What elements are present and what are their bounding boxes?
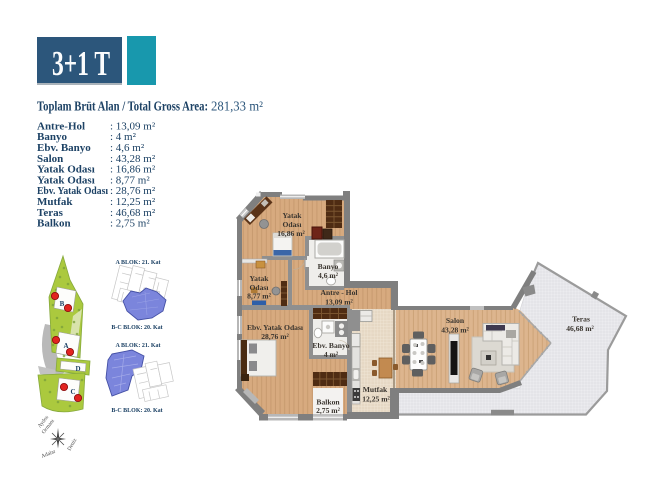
svg-text:Ebv. Banyo: Ebv. Banyo: [312, 341, 349, 350]
svg-text:16,86 m²: 16,86 m²: [277, 229, 305, 238]
svg-text:46,68 m²: 46,68 m²: [566, 324, 594, 333]
svg-text:B-C BLOK: 20. Kat: B-C BLOK: 20. Kat: [111, 408, 162, 414]
svg-text:Balkon: Balkon: [37, 218, 71, 230]
svg-text:4,6 m²: 4,6 m²: [318, 271, 339, 280]
svg-text:Yatak: Yatak: [283, 211, 303, 220]
svg-text:Antre - Hol: Antre - Hol: [321, 288, 358, 297]
svg-text:: 2,75 m²: : 2,75 m²: [110, 218, 150, 230]
svg-text:28,76 m²: 28,76 m²: [261, 332, 289, 341]
svg-text:Salon: Salon: [446, 316, 465, 325]
svg-text:B: B: [60, 300, 65, 308]
svg-text:Mutfak: Mutfak: [363, 385, 388, 394]
svg-text:281,33 m²: 281,33 m²: [211, 99, 263, 114]
svg-text:Teras: Teras: [572, 315, 590, 324]
svg-text:8,77 m²: 8,77 m²: [247, 292, 272, 301]
svg-text:43,28 m²: 43,28 m²: [441, 326, 469, 335]
svg-text:2,75 m²: 2,75 m²: [316, 406, 341, 415]
svg-text:A BLOK: 21. Kat: A BLOK: 21. Kat: [115, 343, 160, 349]
svg-text:Banyo: Banyo: [318, 262, 339, 271]
svg-text:Odası: Odası: [283, 220, 302, 229]
svg-text:A: A: [63, 342, 68, 350]
svg-text:B-C BLOK: 20. Kat: B-C BLOK: 20. Kat: [111, 325, 162, 331]
svg-text:Adalar: Adalar: [41, 449, 57, 460]
svg-text:Deniz: Deniz: [67, 437, 79, 452]
svg-text:C: C: [70, 388, 75, 396]
svg-text:Yatak: Yatak: [250, 274, 270, 283]
svg-text:12,25 m²: 12,25 m²: [362, 395, 390, 404]
svg-text:3+1 T: 3+1 T: [52, 44, 110, 83]
svg-text:D: D: [75, 365, 80, 373]
svg-text:Ebv. Yatak Odası: Ebv. Yatak Odası: [247, 323, 303, 332]
svg-text:4 m²: 4 m²: [324, 350, 339, 359]
svg-text:13,09 m²: 13,09 m²: [325, 298, 353, 307]
svg-text:A BLOK: 21. Kat: A BLOK: 21. Kat: [115, 260, 160, 266]
svg-text:Toplam Brüt Alan / Total Gross: Toplam Brüt Alan / Total Gross Area:: [37, 99, 208, 114]
